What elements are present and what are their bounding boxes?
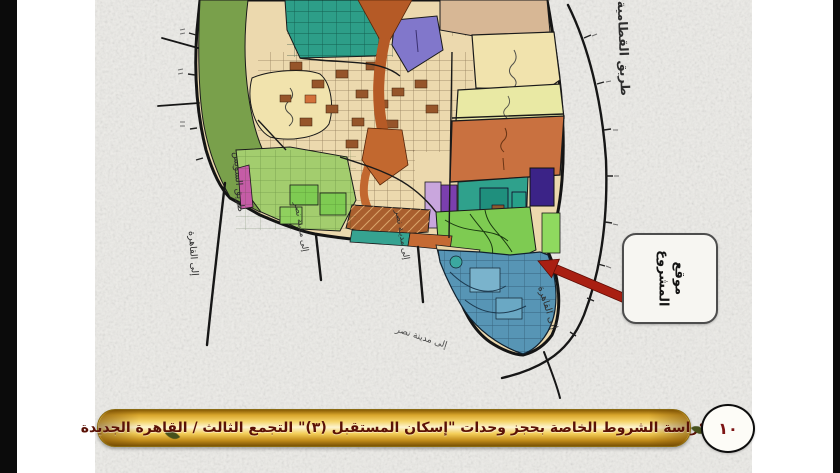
- scanned-booklet-page: { "page": { "paper_color": "#edece8", "l…: [0, 0, 840, 473]
- page-number-badge: ١٠: [701, 404, 755, 453]
- to-nasr-diagonal-label: إلى مدينة نصر: [393, 325, 448, 351]
- booklet-title: كراسة الشروط الخاصة بحجز وحدات "إسكان ال…: [81, 420, 707, 436]
- to-cairo-left-label: إلى القاهرة: [186, 231, 200, 277]
- page-number: ١٠: [718, 419, 738, 438]
- footer-title-bar: كراسة الشروط الخاصة بحجز وحدات "إسكان ال…: [97, 409, 691, 447]
- letterbox-right: [833, 0, 840, 473]
- letterbox-left: [0, 0, 17, 473]
- project-location-callout: موقع المشروع: [622, 233, 718, 324]
- zoning-map: طريق القطامية - العين السخنة طريق السويس…: [140, 0, 680, 405]
- project-location-label: موقع المشروع: [654, 250, 687, 306]
- right-road-label: طريق القطامية - العين السخنة: [611, 0, 633, 96]
- left-road: [207, 183, 225, 345]
- map-body: [196, 0, 564, 355]
